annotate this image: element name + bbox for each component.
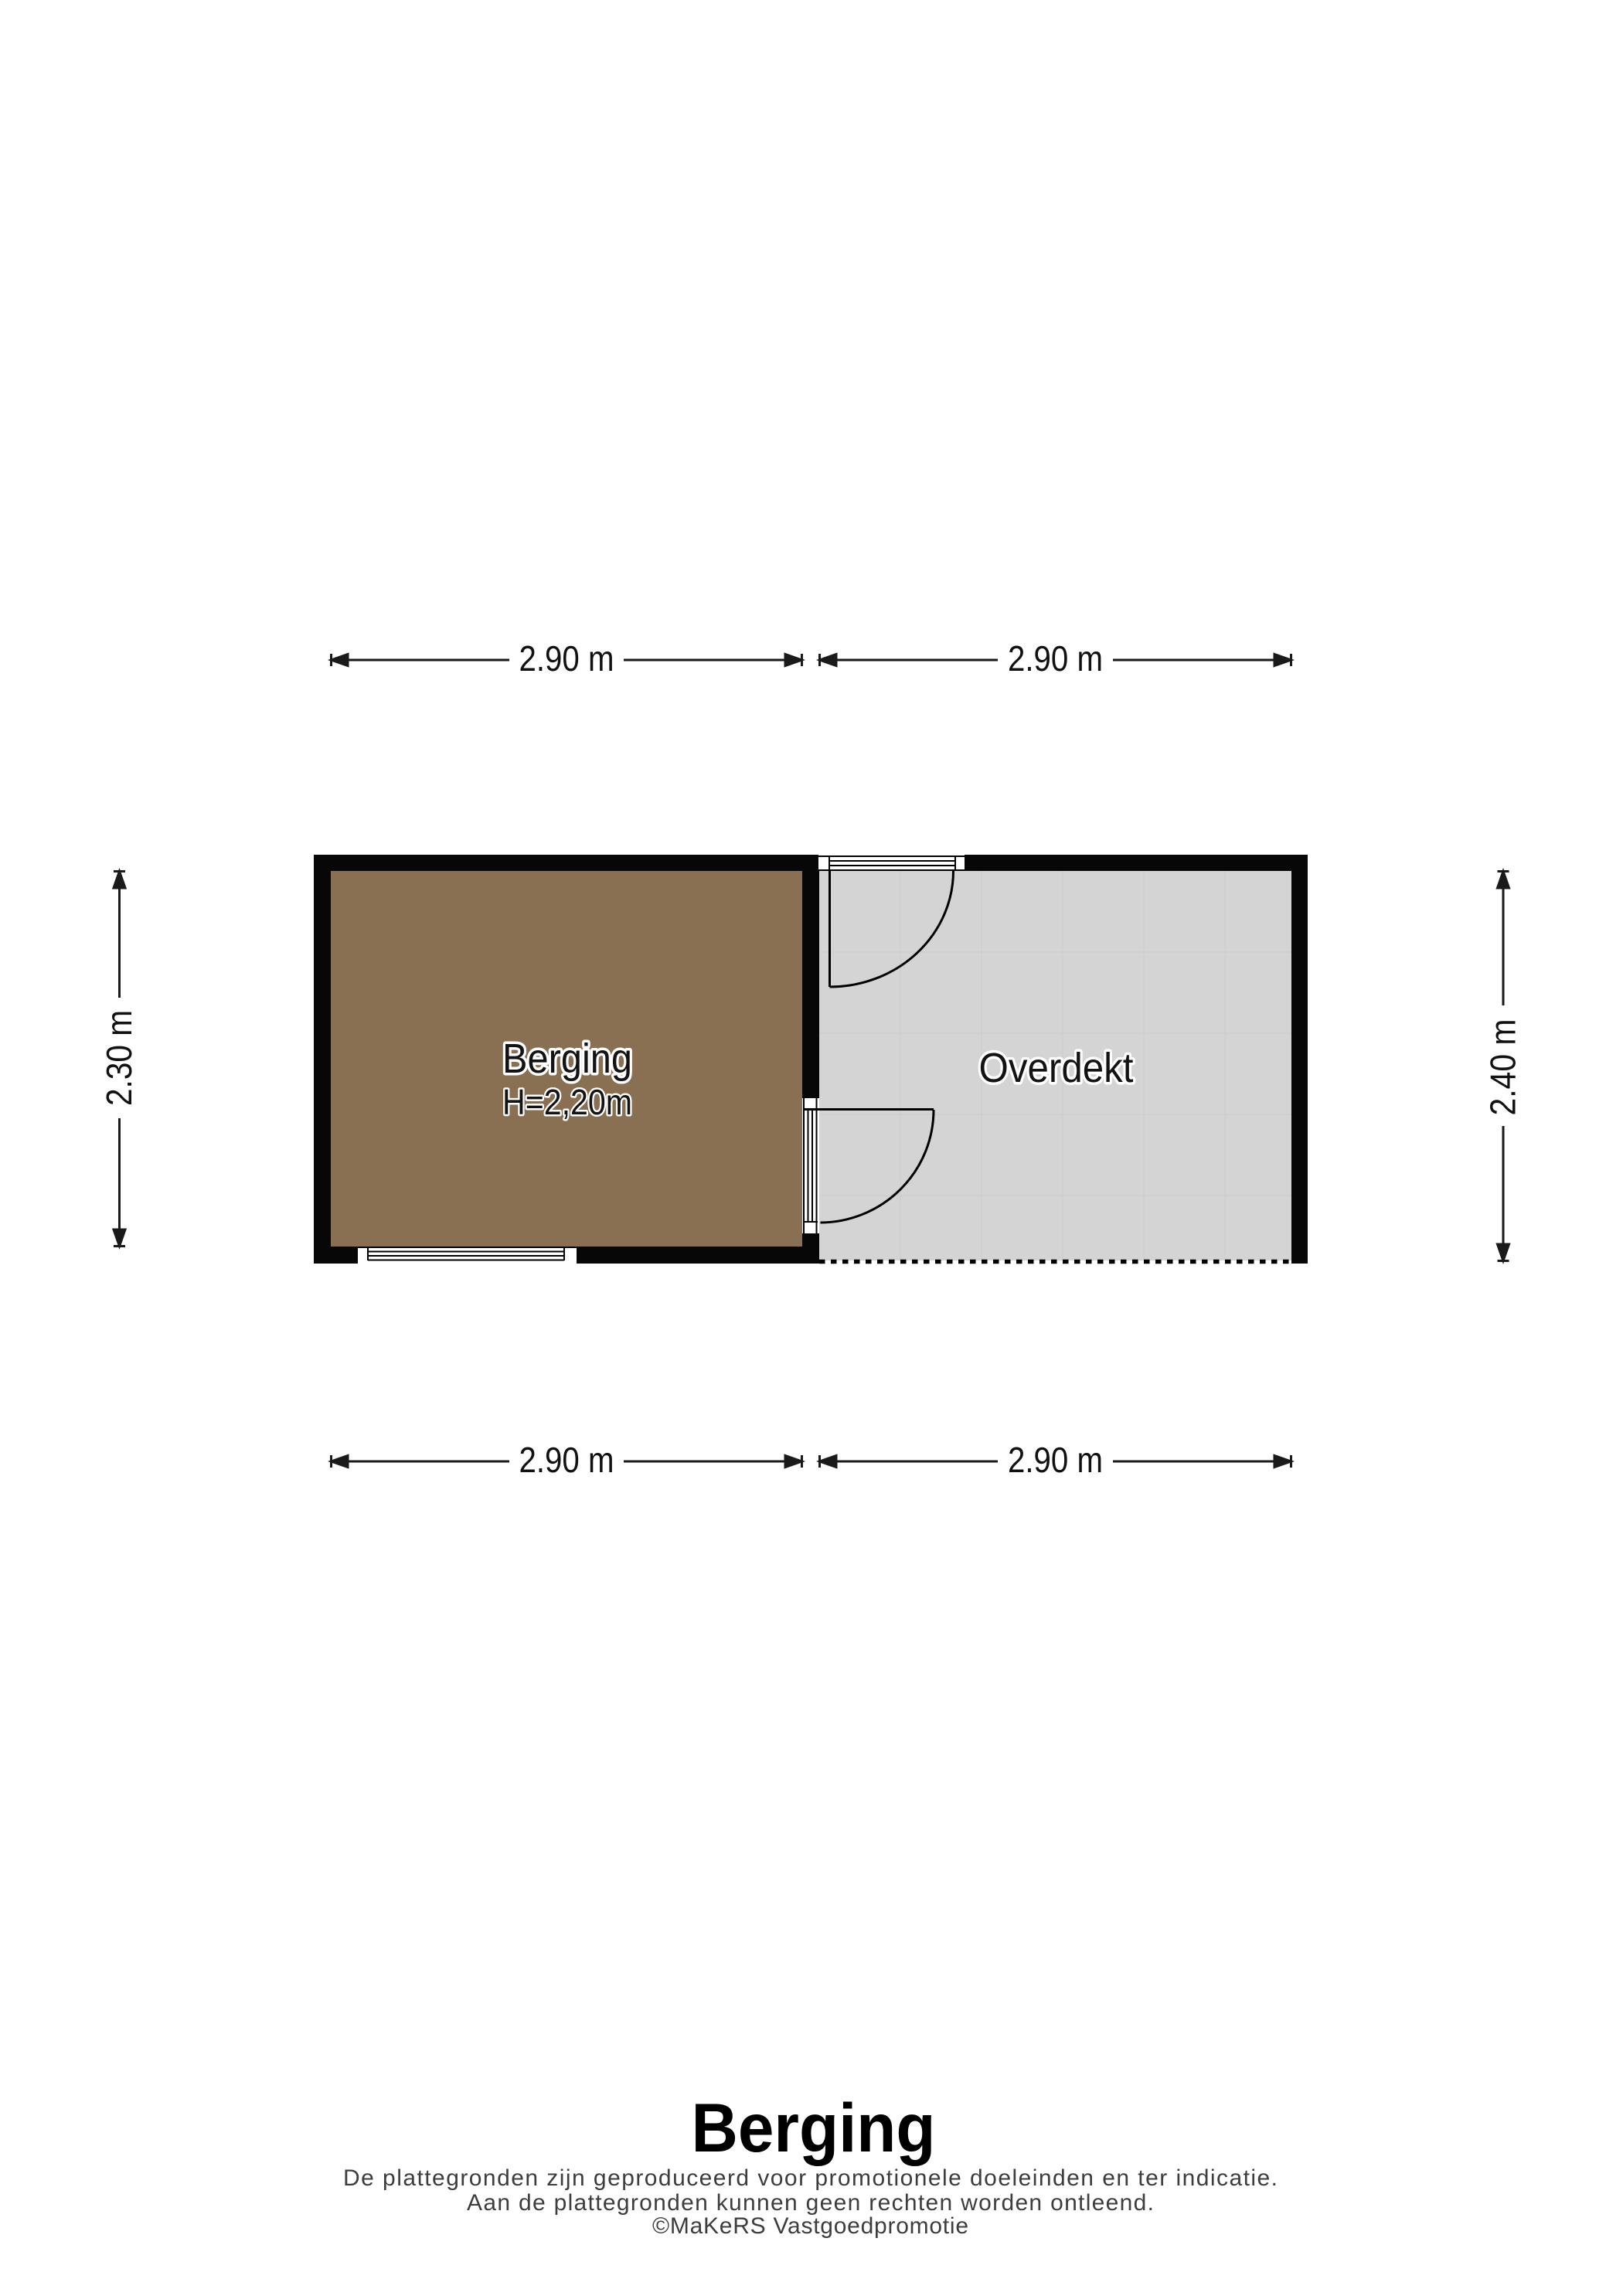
svg-text:2.90 m: 2.90 m (519, 638, 614, 679)
svg-text:2.90 m: 2.90 m (1008, 1440, 1103, 1480)
svg-text:©MaKeRS Vastgoedpromotie: ©MaKeRS Vastgoedpromotie (652, 2213, 968, 2239)
svg-text:Berging: Berging (692, 2089, 936, 2166)
svg-text:2.40 m: 2.40 m (1483, 1019, 1523, 1116)
svg-text:Aan de plattegronden kunnen ge: Aan de plattegronden kunnen geen rechten… (467, 2190, 1154, 2216)
svg-text:De plattegronden zijn geproduc: De plattegronden zijn geproduceerd voor … (343, 2165, 1278, 2191)
svg-text:H=2,20m: H=2,20m (502, 1082, 632, 1122)
svg-text:2.30 m: 2.30 m (99, 1010, 139, 1106)
svg-text:2.90 m: 2.90 m (519, 1440, 614, 1480)
svg-text:2.90 m: 2.90 m (1008, 638, 1103, 679)
svg-text:Berging: Berging (502, 1036, 632, 1082)
svg-text:Overdekt: Overdekt (979, 1045, 1134, 1091)
